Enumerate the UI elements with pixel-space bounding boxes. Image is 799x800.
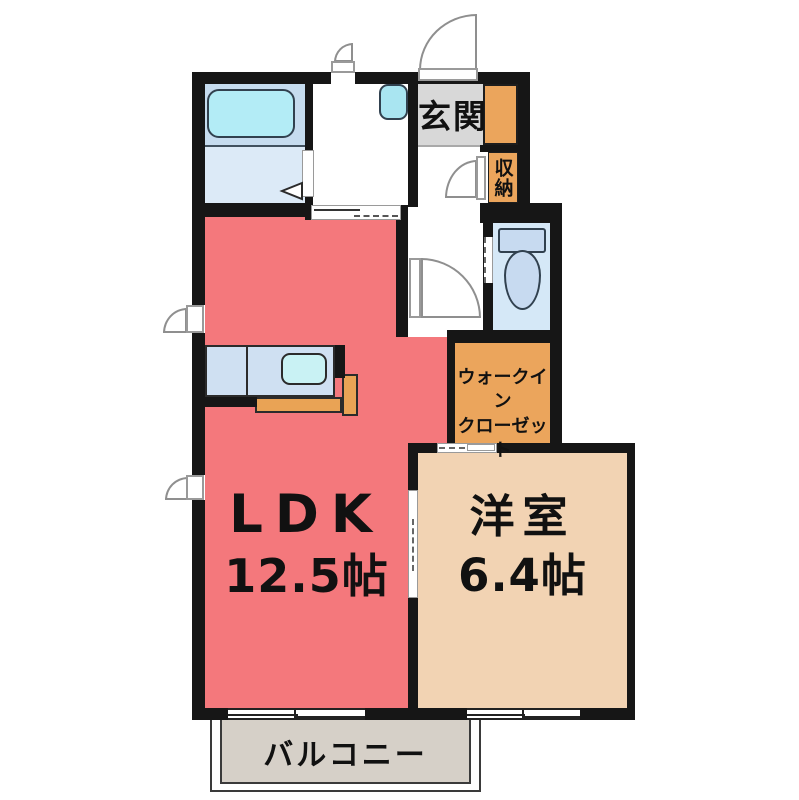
ldk-label-block: LDK 12.5帖 xyxy=(205,482,408,652)
western-room-label-block: 洋室 6.4帖 xyxy=(418,488,627,668)
ldk-balcony-window xyxy=(228,708,365,720)
kitchen-low-counter-end xyxy=(342,374,358,416)
balcony-label: バルコニー xyxy=(220,722,471,782)
wall-left xyxy=(192,72,205,720)
ldk-left-window2-leaf xyxy=(186,475,204,500)
wall-genkan-right xyxy=(518,72,530,223)
western-room-size-label: 6.4帖 xyxy=(418,547,627,606)
ldk-label: LDK xyxy=(205,482,408,548)
entrance-door-arc xyxy=(419,14,477,70)
bathroom-door-arrow-icon xyxy=(279,181,304,201)
ldk-floor-notch xyxy=(408,337,447,443)
kitchen-low-counter xyxy=(255,397,342,413)
kitchen-sink xyxy=(281,353,327,385)
wall-under-counter xyxy=(192,397,257,407)
wall-below-shoe-cabinet xyxy=(480,145,518,152)
wall-western-right xyxy=(627,443,635,720)
wic-label-line1: ウォークイン xyxy=(450,366,555,415)
hallway-ldk-door-leaf xyxy=(409,258,421,318)
wall-wic-top xyxy=(447,330,562,343)
kitchen-counter-divider xyxy=(246,346,248,396)
wall-top xyxy=(192,72,530,84)
wall-bath-bottom xyxy=(192,203,313,217)
washroom-ldk-sliding-door xyxy=(311,205,401,220)
wall-hall-left xyxy=(396,205,408,337)
washroom-top-window-leaf xyxy=(331,61,355,73)
washbasin xyxy=(379,84,408,120)
ldk-western-sliding-door xyxy=(408,490,418,598)
shuno-door-leaf xyxy=(476,156,486,200)
washroom-top-window-arc xyxy=(334,43,353,62)
floorplan-canvas: 玄関 収納 ウォークイン クローゼット LDK 12.5帖 洋室 6.4帖 バル… xyxy=(0,0,799,800)
wall-kitchen-stub xyxy=(335,345,345,378)
ldk-size-label: 12.5帖 xyxy=(205,548,408,606)
ldk-left-window1-arc xyxy=(163,308,187,333)
western-room-label: 洋室 xyxy=(418,488,627,547)
washroom-top-window-gap xyxy=(331,72,355,84)
genkan-label: 玄関 xyxy=(412,94,494,134)
entrance-door-leaf xyxy=(418,68,478,81)
wic-label-line2: クローゼット xyxy=(450,415,555,464)
ldk-left-window2-arc xyxy=(165,477,188,500)
bathtub xyxy=(207,89,295,138)
western-balcony-window xyxy=(467,708,580,720)
shuno-label: 収納 xyxy=(489,153,517,203)
wic-label: ウォークイン クローゼット xyxy=(450,366,555,420)
ldk-left-window1-leaf xyxy=(186,305,204,333)
toilet-door xyxy=(484,237,493,283)
wall-washroom-right xyxy=(408,72,418,207)
